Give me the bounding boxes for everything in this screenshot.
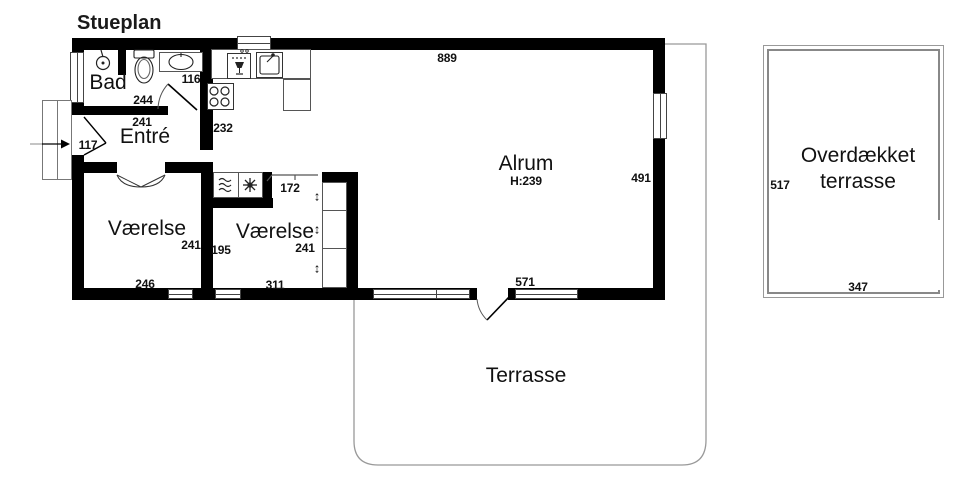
dim-entry-door-width: 117 [79, 138, 98, 152]
dim-alrum-top-width: 889 [437, 51, 456, 65]
wardrobe-slider-arrow-icon: ↕ [314, 222, 321, 237]
dim-kitchen-wall: 232 [213, 121, 232, 135]
dim-alrum-right-height: 491 [631, 171, 650, 185]
dim-vaerelse2-door-width: 172 [280, 181, 299, 195]
terrace-outline [354, 44, 706, 465]
washer-icon [219, 179, 231, 192]
room-label-bad: Bad [89, 70, 126, 96]
dryer-icon [243, 178, 257, 192]
wardrobe-slider-arrow-icon: ↕ [314, 261, 321, 276]
dim-vaerelse2-height: 241 [295, 241, 314, 255]
wardrobe-slider-arrow-icon: ↕ [314, 189, 321, 204]
stove-burners-icon [210, 87, 229, 106]
dishwasher-glyph-icon [232, 50, 248, 74]
floor-plan: Stueplan ↕ ↕ ↕ [0, 0, 960, 481]
kitchen-sink-detail-icon [260, 53, 279, 74]
room-label-overdaekket-terrasse: Overdækket terrasse [788, 143, 928, 195]
bathroom-door-icon [158, 84, 197, 110]
bathroom-sink-icon [169, 53, 193, 70]
dim-vaerelse2-width: 311 [266, 278, 285, 292]
dim-vaerelse1-width: 246 [135, 277, 154, 291]
alrum-ceiling-height: H:239 [510, 174, 542, 188]
shower-icon [97, 50, 110, 70]
dim-vaerelse2-left-height: 195 [211, 243, 230, 257]
dim-bad-fixture-width: 116 [182, 72, 201, 86]
vaerelse1-double-door-icon [117, 175, 165, 187]
room-label-terrasse: Terrasse [486, 363, 567, 389]
dim-bad-width: 244 [133, 93, 152, 107]
dim-entre-width: 241 [132, 115, 151, 129]
dim-vaerelse1-height: 241 [181, 238, 200, 252]
terrace-door-icon [477, 295, 511, 320]
dim-alrum-terrace-door: 571 [515, 275, 534, 289]
dim-overdaekket-width: 347 [848, 280, 867, 294]
dim-overdaekket-height: 517 [770, 178, 789, 192]
entry-direction-arrowhead-icon [61, 140, 70, 149]
room-label-vaerelse1: Værelse [108, 216, 186, 242]
toilet-icon [134, 50, 154, 83]
